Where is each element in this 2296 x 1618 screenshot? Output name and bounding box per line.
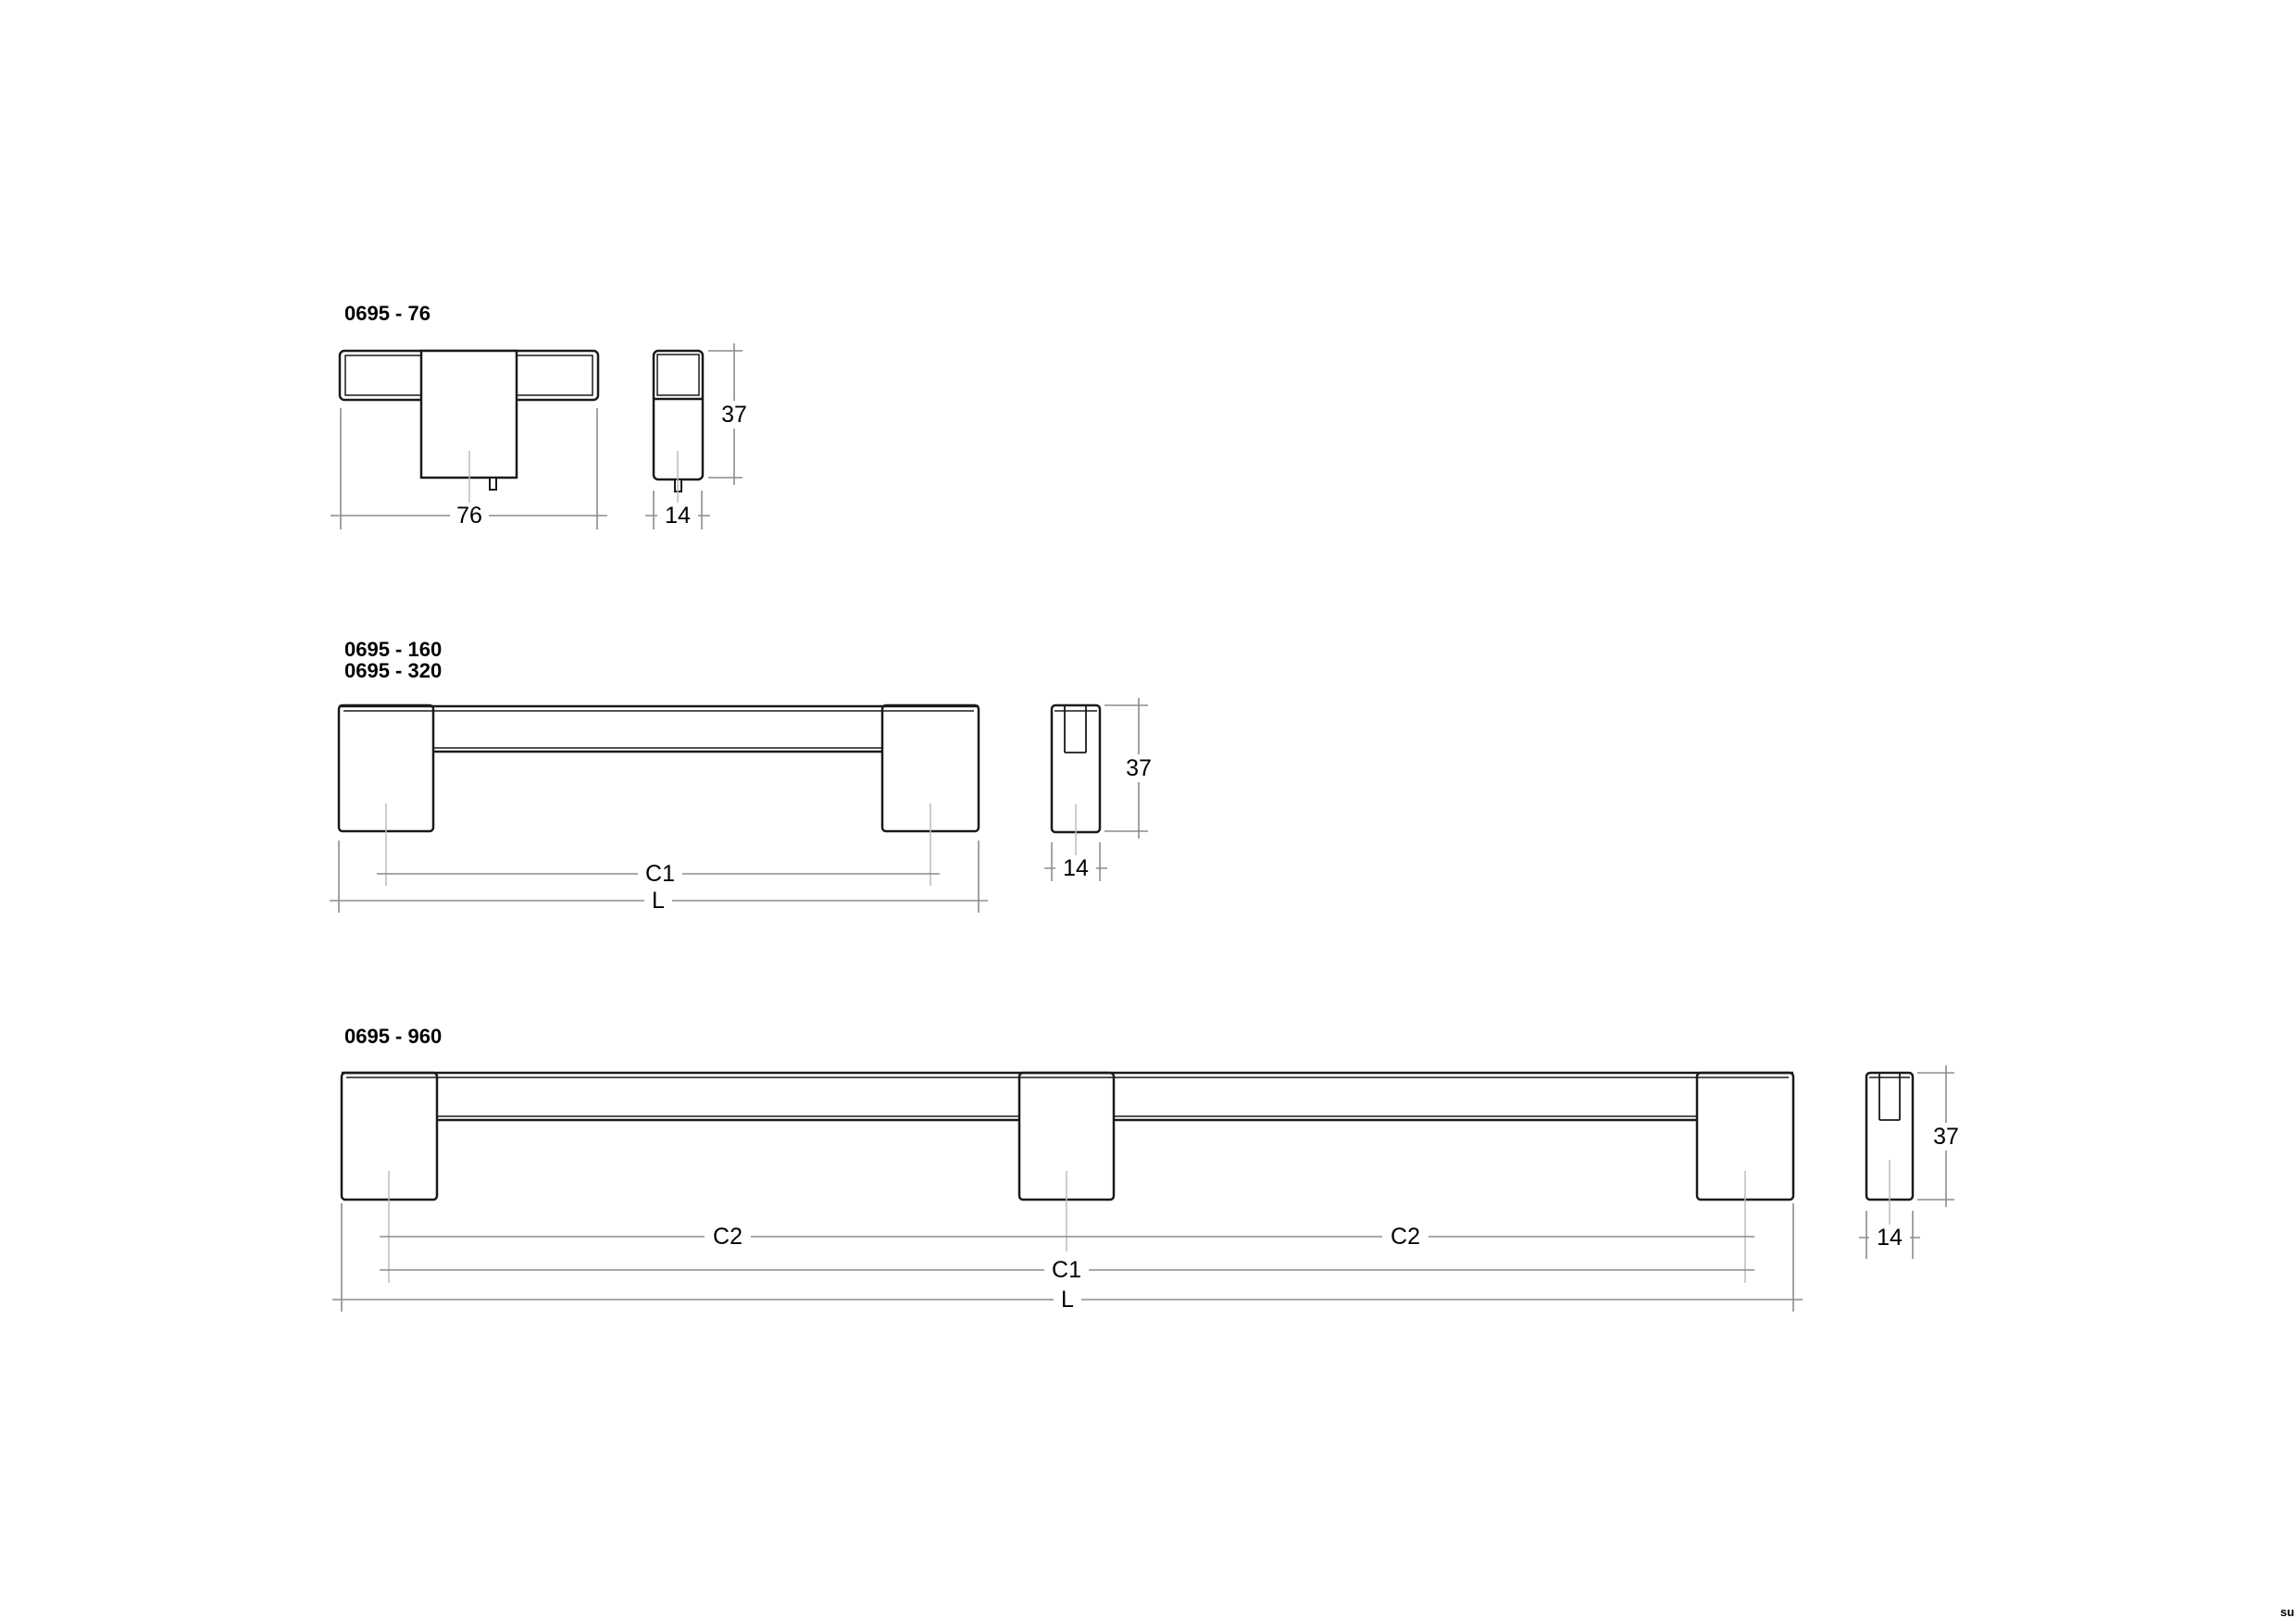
knob-front-view: 76 <box>331 351 607 529</box>
long-handle-front-view: C2 C2 C1 L <box>332 1073 1803 1313</box>
dimension-label-c1: C1 <box>1052 1257 1081 1283</box>
dimension-label-c2-left: C2 <box>713 1224 742 1250</box>
dimension-label-c1: C1 <box>645 861 675 887</box>
knob-side-view: 37 14 <box>645 343 755 529</box>
dimension-label-width: 76 <box>456 503 482 529</box>
dimension-label-l: L <box>1061 1287 1074 1313</box>
long-handle-side-view: 37 14 <box>1859 1065 1967 1259</box>
dimension-label-depth: 14 <box>665 503 691 529</box>
drawing-title: 0695 - 320 <box>344 659 442 682</box>
watermark-text: su <box>2280 1605 2294 1618</box>
dimension-label-c2-right: C2 <box>1391 1224 1420 1250</box>
drawing-title: 0695 - 960 <box>344 1025 442 1048</box>
catalog-drawing-page: 0695 - 76 76 37 <box>0 0 2296 1618</box>
knob-drawing-0695-76: 0695 - 76 76 37 <box>331 302 755 529</box>
dimension-label-height: 37 <box>1933 1124 1959 1150</box>
dimension-label-height: 37 <box>1126 755 1152 781</box>
side-inner-line <box>657 355 699 395</box>
handle-drawing-0695-160-320: 0695 - 160 0695 - 320 C1 L <box>330 638 1160 914</box>
dimension-label-depth: 14 <box>1877 1225 1903 1251</box>
drawing-title: 0695 - 160 <box>344 638 442 661</box>
dimension-label-height: 37 <box>721 402 747 428</box>
dimension-label-l: L <box>652 888 665 914</box>
handle-front-view: C1 L <box>330 705 988 914</box>
long-handle-drawing-0695-960: 0695 - 960 C2 C2 C1 <box>332 1025 1967 1313</box>
handle-side-view: 37 14 <box>1044 698 1160 881</box>
screw-stub <box>490 478 496 490</box>
drawing-title: 0695 - 76 <box>344 302 430 325</box>
dimension-label-depth: 14 <box>1063 855 1089 881</box>
